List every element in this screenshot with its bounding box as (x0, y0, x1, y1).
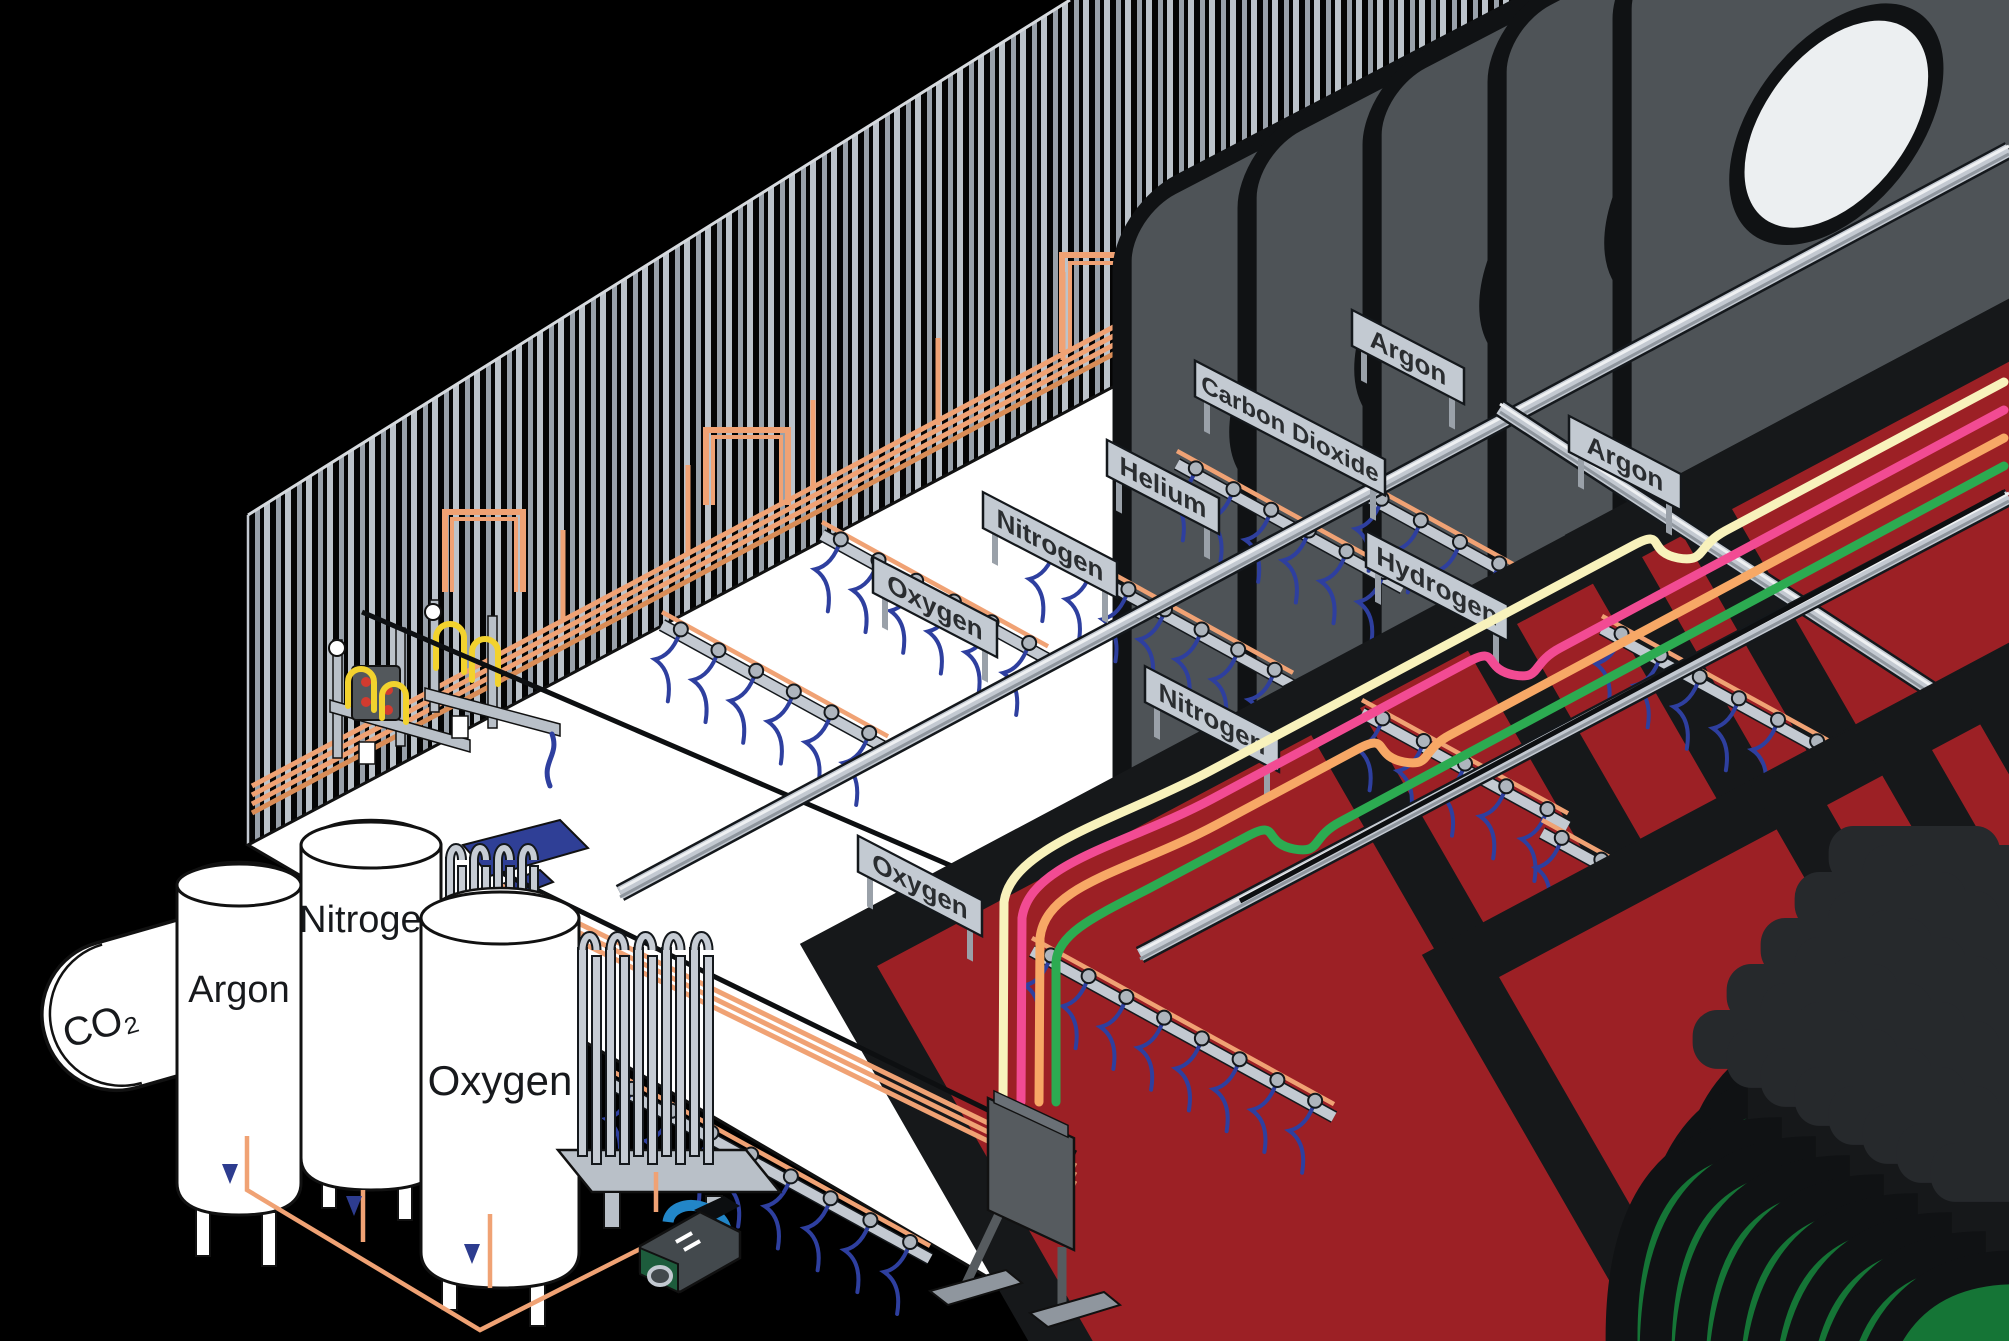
vaporizer-tube (620, 956, 629, 1164)
fill-valve (1732, 691, 1746, 705)
fill-valve (903, 1235, 917, 1249)
vaporizer-tube (648, 956, 657, 1164)
vaporizer-tube (704, 956, 713, 1164)
fill-valve (1499, 779, 1513, 793)
vaporizer-leg (604, 1192, 620, 1228)
vaporizer-tube (690, 948, 699, 1156)
fill-valve (1340, 544, 1354, 558)
fill-valve (825, 705, 839, 719)
fill-valve (834, 532, 848, 546)
oxygen-tank-label: Oxygen (428, 1057, 573, 1104)
pressure-gauge (329, 640, 345, 656)
oxygen-tank: Oxygen (421, 888, 579, 1326)
fill-valve (1231, 643, 1245, 657)
fill-valve (1157, 1011, 1171, 1025)
fill-valve (1233, 1052, 1247, 1066)
fill-valve (1540, 802, 1554, 816)
vaporizer-tube (662, 948, 671, 1156)
fill-valve (1119, 990, 1133, 1004)
vaporizer-tube (606, 948, 615, 1156)
fill-valve (1771, 713, 1785, 727)
fill-valve (784, 1169, 798, 1183)
vaporizer-tube (634, 948, 643, 1156)
fill-valve (824, 1191, 838, 1205)
fill-valve (674, 622, 688, 636)
fill-valve (1414, 513, 1428, 527)
fill-valve (787, 685, 801, 699)
fill-valve (862, 726, 876, 740)
fill-valve (1082, 969, 1096, 983)
fill-valve (1264, 503, 1278, 517)
fill-valve (1022, 636, 1036, 650)
fill-valve (1227, 482, 1241, 496)
fill-valve (1189, 461, 1203, 475)
vaporizer-tube (578, 948, 587, 1156)
argon-tank: Argon (177, 862, 301, 1266)
fill-valve (1195, 1031, 1209, 1045)
fill-valve (1195, 623, 1209, 637)
gas-filling-plant-diagram: OxygenNitrogenHeliumCarbon DioxideArgonH… (0, 0, 2009, 1341)
fill-valve (749, 664, 763, 678)
argon-tank-label: Argon (188, 969, 289, 1011)
fill-valve (1308, 1094, 1322, 1108)
pressure-gauge (425, 604, 441, 620)
fill-valve (863, 1213, 877, 1227)
vaporizer-tube (676, 956, 685, 1164)
fill-valve (1270, 1073, 1284, 1087)
fill-valve (1121, 582, 1135, 596)
fill-valve (1453, 535, 1467, 549)
fill-valve (1417, 734, 1431, 748)
fill-valve (1268, 663, 1282, 677)
fill-valve (712, 643, 726, 657)
fill-valve (1555, 831, 1569, 845)
vaporizer-tube (592, 956, 601, 1164)
